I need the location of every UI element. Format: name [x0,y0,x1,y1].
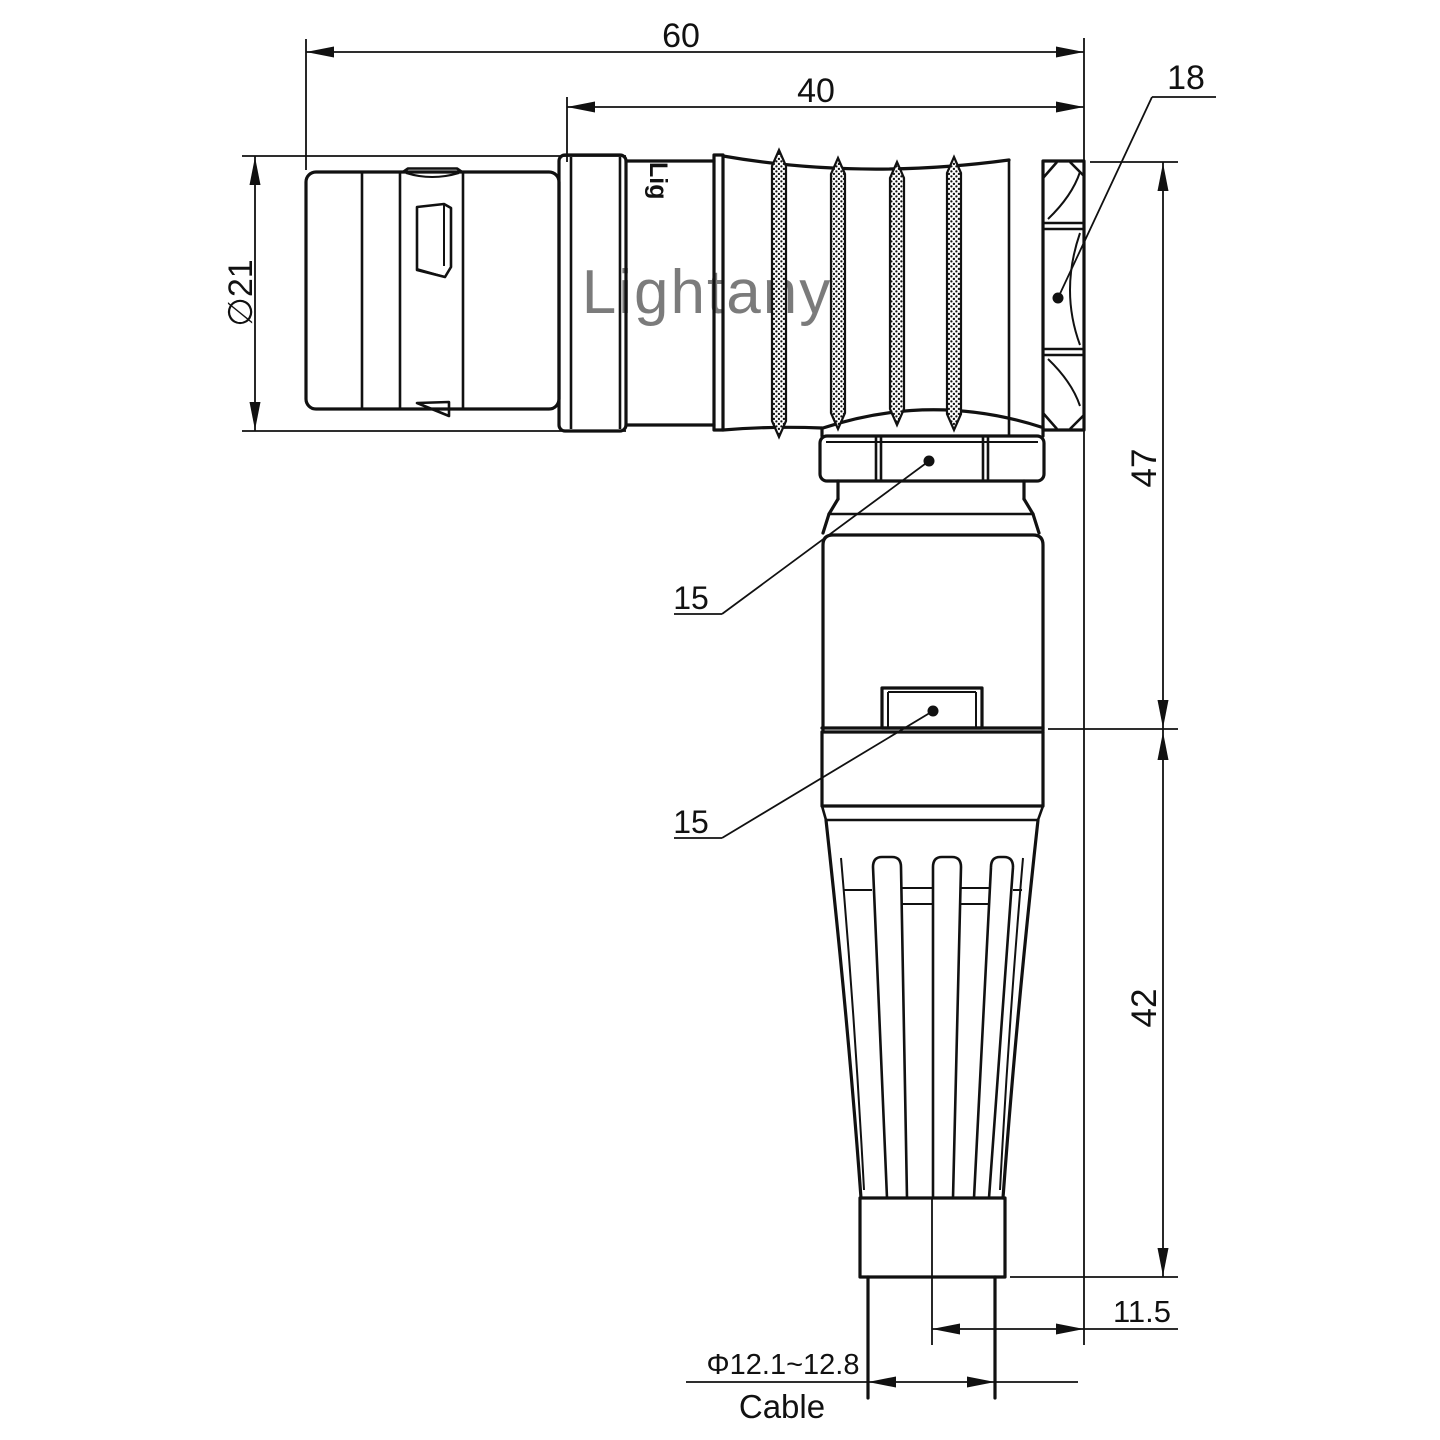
clamp-nut-15 [820,427,1044,481]
dimension-cable-diameter: Φ12.1~12.8 Cable [686,1349,1078,1425]
dimension-11-5: 11.5 [932,1198,1178,1345]
callout-15-lower-label: 15 [673,804,709,840]
dim-47-label: 47 [1125,449,1164,488]
dimension-40: 40 [567,72,1084,162]
callout-15-upper-label: 15 [673,580,709,616]
backshell-body [822,535,1043,820]
dimension-60: 60 [306,17,1084,170]
strain-relief-boot [826,820,1038,1198]
dim-phi21-label: ∅21 [222,259,260,326]
dim-11-5-label: 11.5 [1113,1294,1171,1329]
dimension-47: 47 [1048,162,1178,729]
part-marking-text: Lig [644,162,672,200]
latch-window [417,204,451,277]
dim-40-label: 40 [797,72,835,110]
cable-label: Cable [739,1388,825,1425]
backshell-neck [823,481,1039,533]
dimension-phi21: ∅21 [222,156,626,431]
drawing-canvas: Lightany [0,0,1440,1440]
dimension-42: 42 [1010,729,1178,1277]
dim-18-label: 18 [1167,59,1205,97]
dim-60-label: 60 [662,17,700,55]
coupling-nut-18 [1043,161,1084,430]
dim-42-label: 42 [1125,989,1164,1028]
connector-engineering-drawing: Lightany [0,0,1440,1440]
dim-cable-diameter-label: Φ12.1~12.8 [707,1349,860,1381]
plug-release-sleeve [306,169,559,417]
